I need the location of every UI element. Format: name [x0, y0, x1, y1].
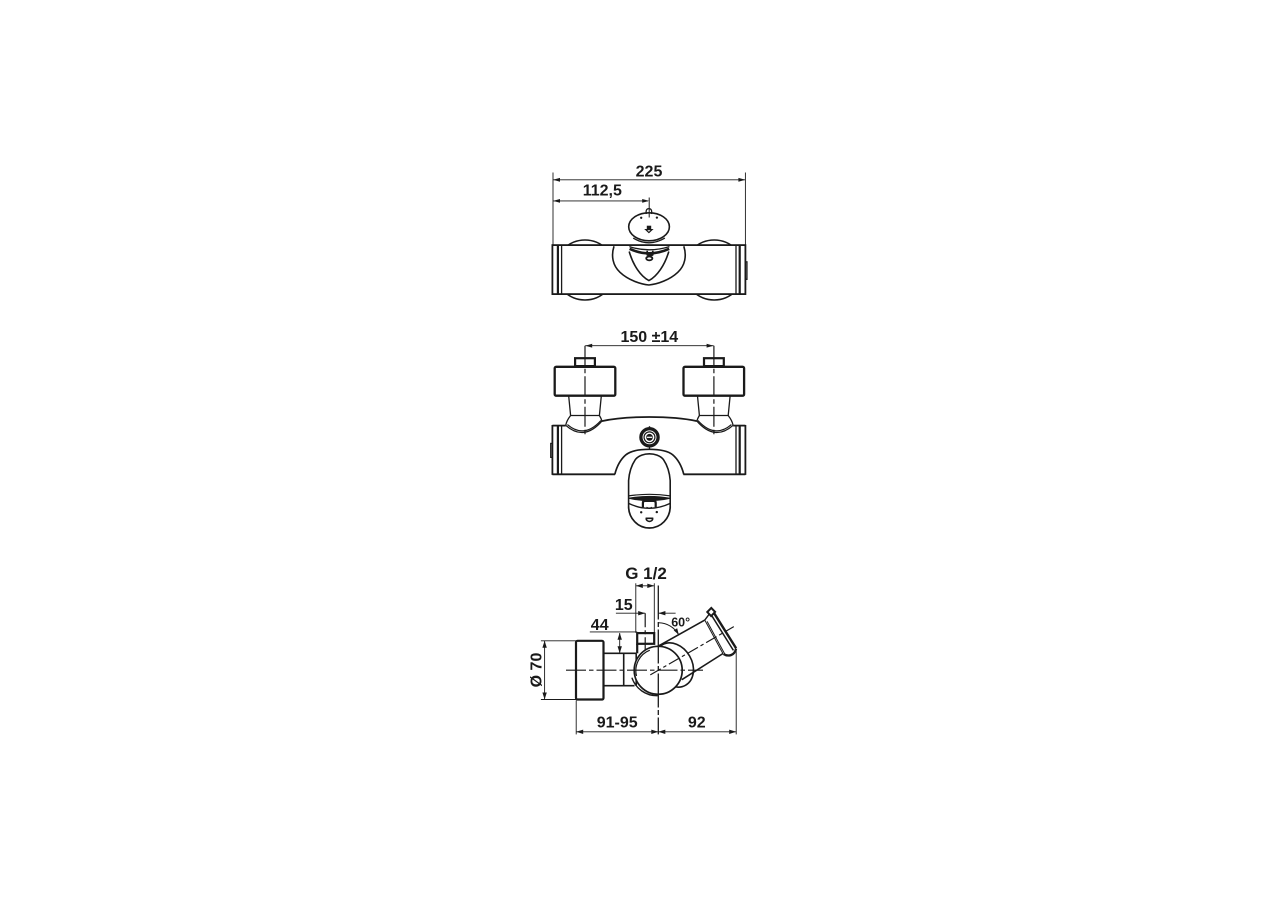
svg-text:91-95: 91-95 [597, 715, 638, 732]
svg-text:112,5: 112,5 [583, 183, 622, 200]
svg-text:15: 15 [615, 597, 633, 614]
svg-text:225: 225 [636, 163, 663, 180]
svg-text:92: 92 [688, 715, 706, 732]
svg-text:150 ±14: 150 ±14 [620, 329, 678, 346]
svg-text:60°: 60° [671, 615, 690, 629]
svg-text:G 1/2: G 1/2 [625, 564, 667, 583]
svg-text:Ø 70: Ø 70 [528, 653, 545, 688]
